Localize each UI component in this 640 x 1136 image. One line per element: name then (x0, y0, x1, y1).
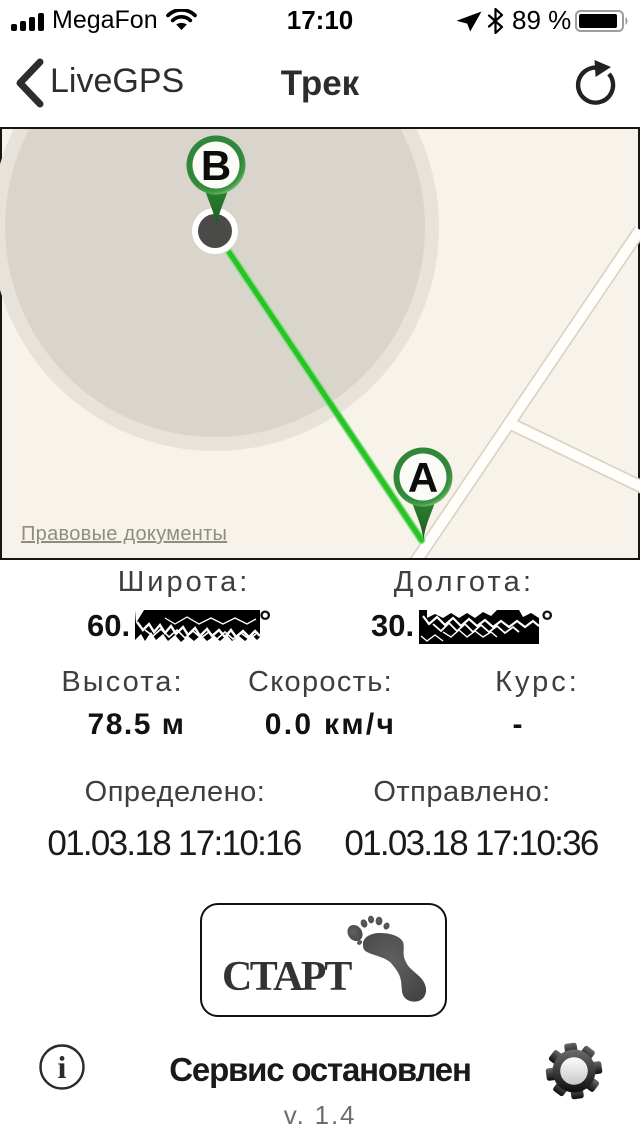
svg-text:A: A (408, 454, 438, 501)
svg-text:B: B (201, 142, 231, 189)
